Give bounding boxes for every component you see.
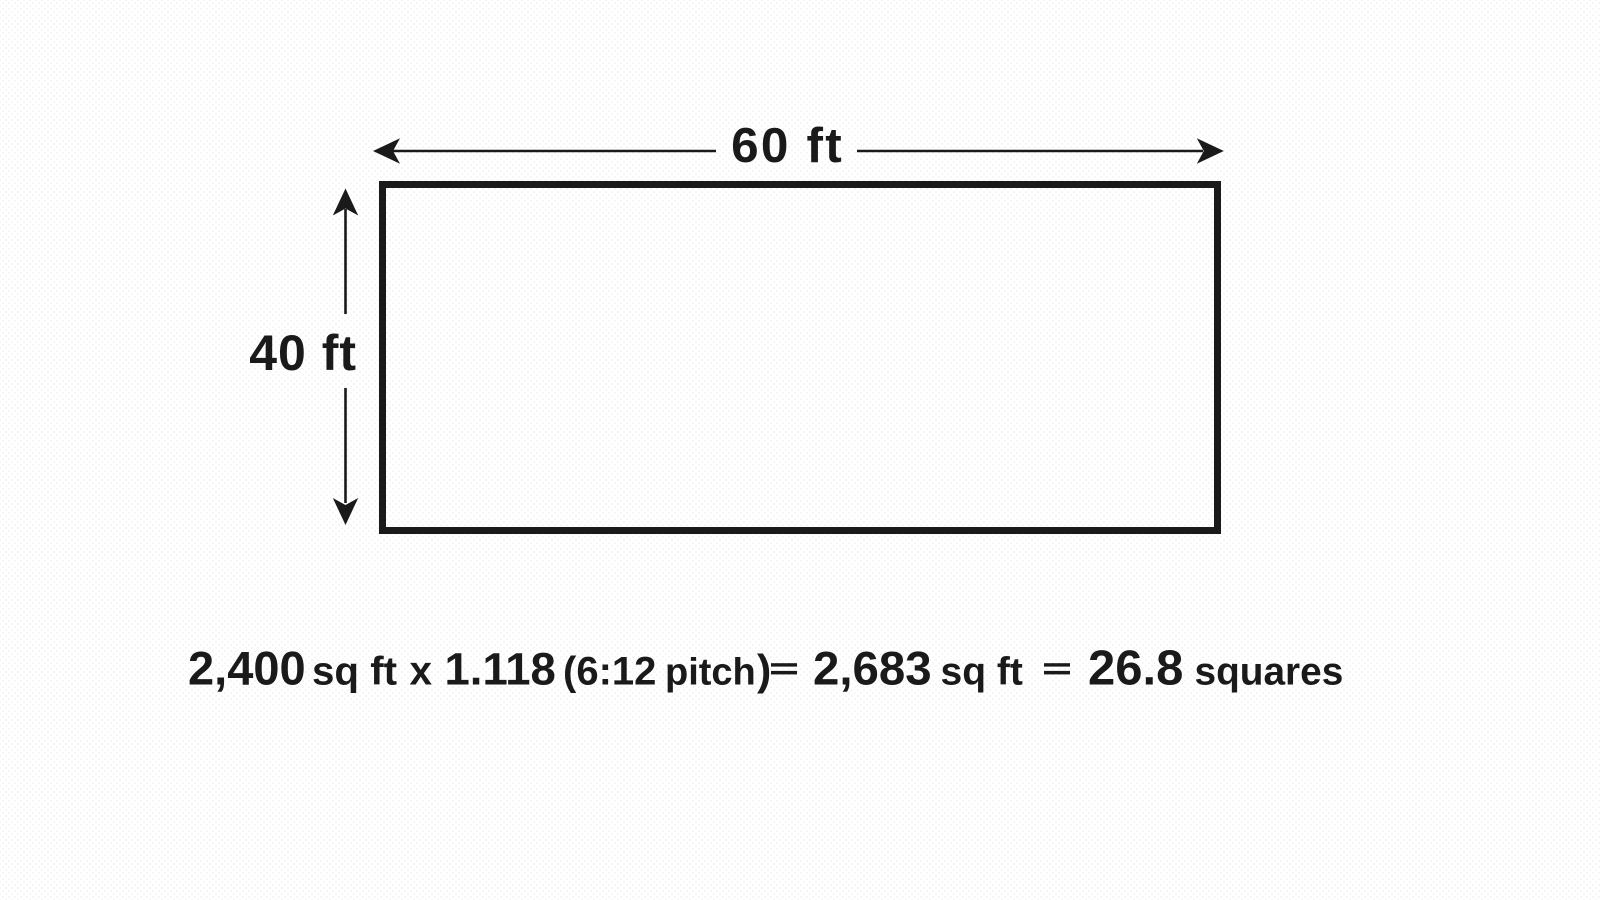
svg-text:40 ft: 40 ft [249, 325, 357, 381]
svg-text:60 ft: 60 ft [731, 118, 844, 173]
svg-text:2,400sq ftx1.118(6:12pitch)2,6: 2,400sq ftx1.118(6:12pitch)2,683sq ft26.… [188, 642, 1343, 696]
